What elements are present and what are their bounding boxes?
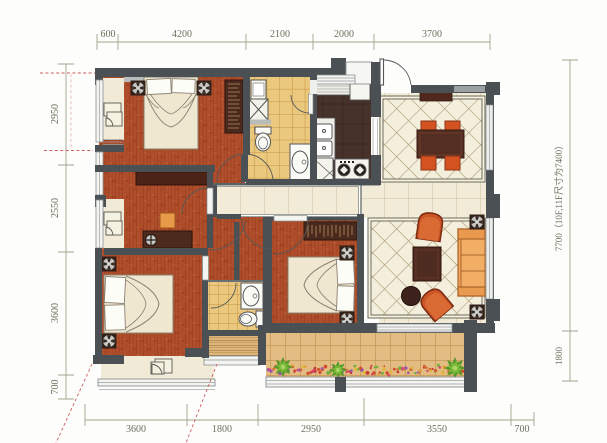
svg-text:700: 700 (50, 380, 61, 395)
svg-text:2950: 2950 (301, 424, 321, 435)
svg-text:2950: 2950 (50, 104, 61, 124)
svg-text:3550: 3550 (427, 424, 447, 435)
svg-text:2000: 2000 (334, 29, 354, 40)
svg-text:600: 600 (101, 29, 116, 40)
svg-text:1800: 1800 (554, 347, 564, 366)
svg-text:3600: 3600 (126, 424, 146, 435)
svg-text:1800: 1800 (212, 424, 232, 435)
svg-text:3600: 3600 (50, 303, 61, 323)
svg-text:2550: 2550 (50, 198, 61, 218)
svg-text:3700: 3700 (422, 29, 442, 40)
svg-text:4200: 4200 (172, 29, 192, 40)
svg-text:700: 700 (515, 424, 530, 435)
svg-text:7700（10F,11F尺寸为7400）: 7700（10F,11F尺寸为7400） (553, 141, 564, 251)
svg-text:2100: 2100 (270, 29, 290, 40)
